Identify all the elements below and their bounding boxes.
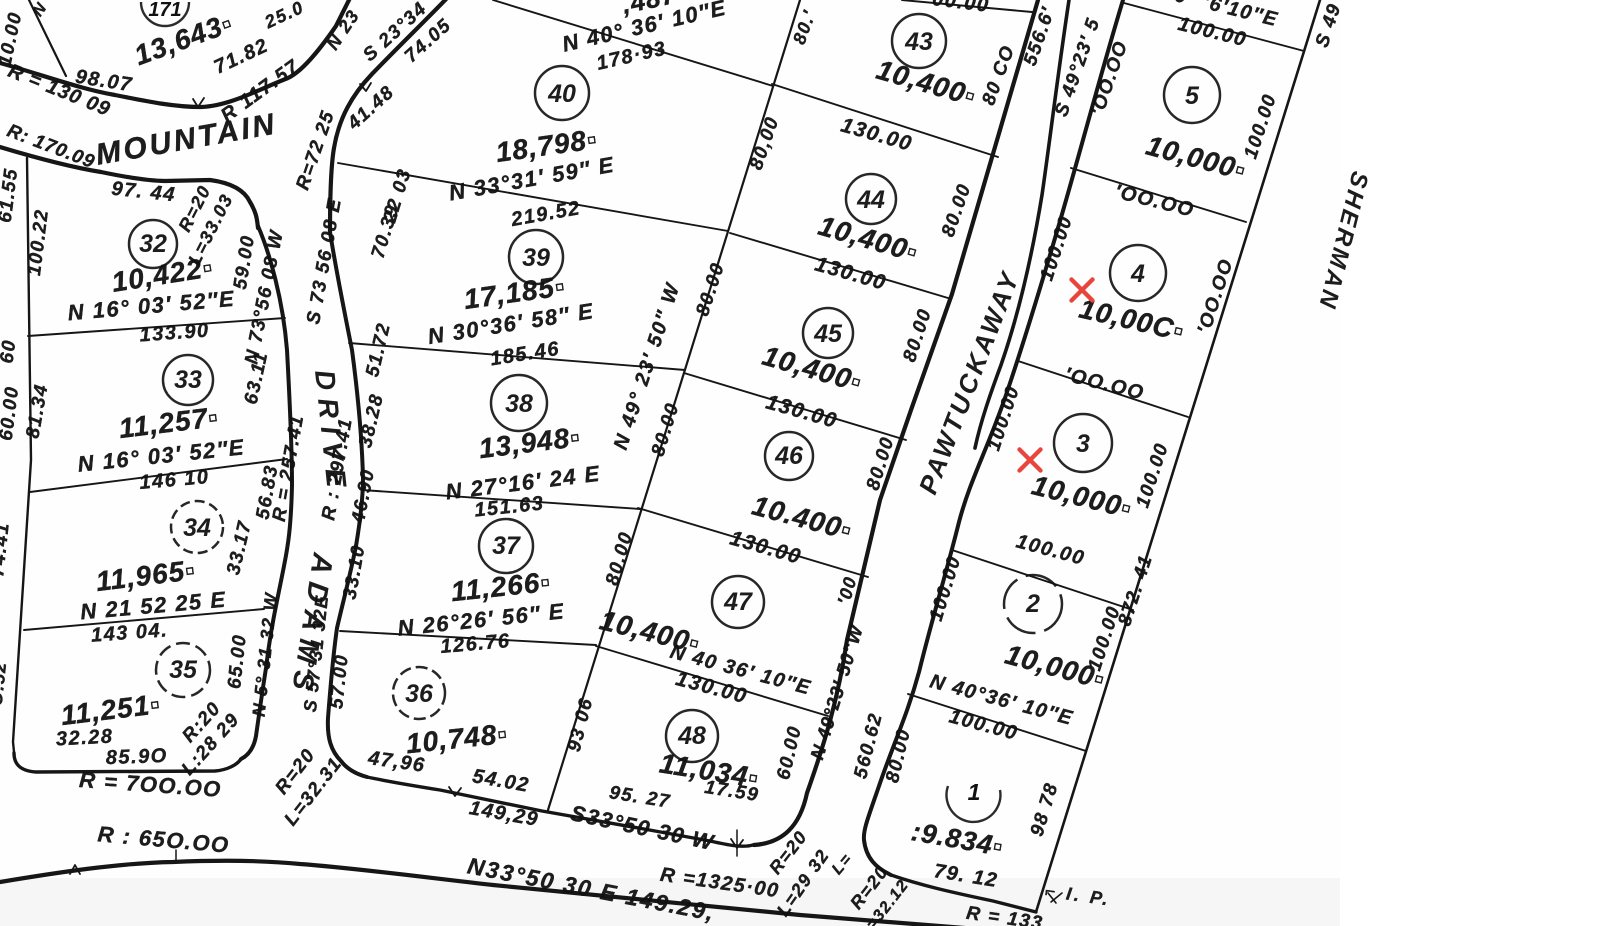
svg-text:39: 39 [522, 244, 550, 272]
svg-text:2: 2 [1025, 590, 1040, 618]
svg-text:43: 43 [904, 28, 933, 56]
svg-text:44: 44 [856, 186, 885, 214]
svg-text:4: 4 [1130, 260, 1145, 288]
svg-text:5: 5 [1185, 82, 1200, 110]
svg-text:85.9O: 85.9O [105, 745, 168, 769]
svg-text:35: 35 [169, 656, 198, 684]
svg-text:48: 48 [677, 722, 706, 750]
svg-text:37: 37 [492, 532, 521, 560]
svg-text:45: 45 [813, 320, 843, 348]
svg-text:1: 1 [968, 779, 981, 805]
svg-text:36: 36 [405, 680, 434, 708]
svg-text:171: 171 [148, 0, 181, 21]
svg-text:32: 32 [139, 230, 167, 258]
svg-text:34: 34 [183, 514, 211, 542]
svg-text:38: 38 [505, 390, 533, 418]
svg-text:33: 33 [174, 366, 202, 394]
svg-text:60: 60 [0, 338, 20, 365]
svg-text:40: 40 [547, 80, 576, 108]
svg-text:47: 47 [723, 588, 753, 616]
svg-text:46: 46 [774, 442, 804, 470]
svg-text:3: 3 [1076, 430, 1090, 458]
